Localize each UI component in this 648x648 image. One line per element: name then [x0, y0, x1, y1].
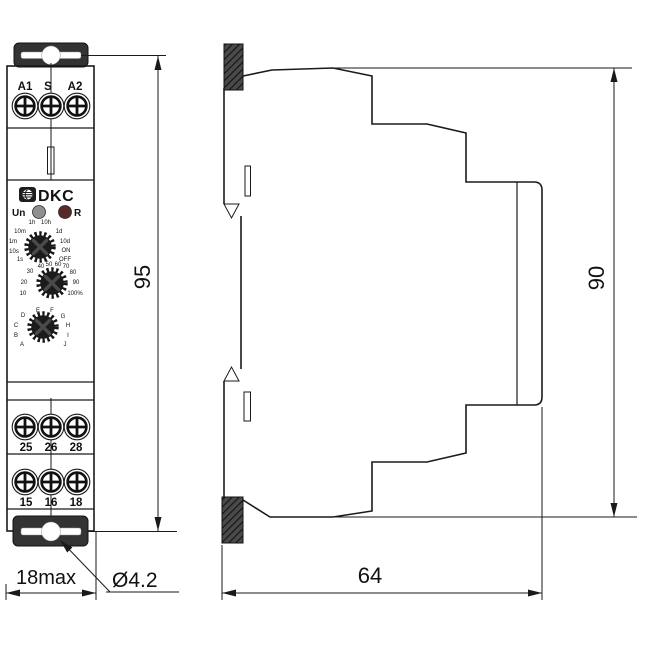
dial3-label: E [36, 308, 40, 314]
arrow-down-icon [155, 517, 162, 531]
dial1-label: 10s [9, 249, 19, 255]
dial2-label: 30 [27, 269, 34, 275]
led-r-label: R [74, 208, 82, 219]
brand-logo: DKC [19, 187, 74, 205]
dial1-label: 1s [17, 257, 23, 263]
arrow-up-icon [155, 56, 162, 70]
screw-terminal-icon [64, 93, 90, 119]
screw-terminal-icon [12, 469, 38, 495]
terminal-label-s: S [44, 81, 52, 93]
screw-terminal-icon [38, 469, 64, 495]
dial3-label: F [50, 308, 54, 314]
screw-terminal-icon [38, 93, 64, 119]
dimension-95-label: 95 [130, 265, 155, 289]
dial1-label: ON [62, 248, 71, 254]
hole-diameter-label: Ø4.2 [112, 569, 158, 592]
side-slot-lower [244, 392, 251, 421]
side-slot-upper [245, 166, 251, 196]
screw-terminals-top [12, 93, 90, 119]
dimension-drawing: A1 S A2 DKC Un [0, 0, 648, 648]
dial3-label: J [64, 342, 67, 348]
terminal-label-a1: A1 [18, 81, 33, 93]
screw-terminal-icon [12, 93, 38, 119]
dimension-95: 95 [81, 56, 177, 532]
dial3-label: G [61, 314, 66, 320]
latch-wedge-lower [224, 367, 239, 381]
arrow-up-icon [611, 68, 618, 82]
terminal-label-16: 16 [45, 497, 58, 509]
led-indicators: Un R [12, 206, 82, 220]
led-un-icon [33, 206, 46, 219]
dial1-label: 1d [56, 229, 63, 235]
side-body-outline [243, 68, 542, 517]
terminal-label-a2: A2 [68, 81, 83, 93]
dial2-label: 50 [46, 262, 53, 268]
screw-terminal-icon [38, 414, 64, 440]
dial3-label: B [14, 333, 18, 339]
hole-callout: Ø4.2 [60, 540, 179, 592]
dial3-label: D [21, 313, 26, 319]
dial3-label: C [14, 323, 19, 329]
arrow-right-icon [528, 590, 542, 597]
latch-wedge-upper [224, 204, 239, 218]
dial-percent: 40 50 60 70 30 20 10 80 90 100% [20, 262, 84, 297]
terminal-label-18: 18 [70, 497, 83, 509]
dial1-label: 10d [60, 239, 70, 245]
screw-terminal-icon [64, 469, 90, 495]
terminal-label-26: 26 [45, 442, 58, 454]
arrow-left-icon [222, 590, 236, 597]
screw-terminal-icon [64, 414, 90, 440]
screw-terminal-icon [12, 414, 38, 440]
terminal-label-25: 25 [20, 442, 33, 454]
dial3-label: I [67, 333, 69, 339]
bottom-din-clip [13, 516, 88, 546]
led-un-label: Un [12, 208, 25, 219]
dial3-label: H [66, 323, 70, 329]
dial1-label: 1h [29, 220, 36, 226]
dimension-18max-label: 18max [16, 567, 76, 589]
arrow-right-icon [82, 590, 96, 597]
arrow-left-icon [6, 590, 20, 597]
rotary-knob-icon [27, 234, 53, 260]
dial2-label: 80 [70, 270, 77, 276]
dial2-label: 60 [55, 262, 62, 268]
bottom-mounting-hole [42, 522, 61, 541]
dial1-label: 1m [9, 239, 17, 245]
rotary-knob-icon [30, 314, 56, 340]
drawing-canvas: A1 S A2 DKC Un [0, 0, 648, 648]
screw-terminals-bottom: 15 16 18 [12, 469, 90, 509]
dial2-label: 20 [21, 280, 28, 286]
arrow-down-icon [611, 503, 618, 517]
led-r-icon [59, 206, 72, 219]
dial1-label: 10h [41, 220, 51, 226]
dimension-64-label: 64 [358, 563, 382, 588]
side-view [222, 44, 542, 543]
dial2-label: 90 [73, 280, 80, 286]
brand-text: DKC [38, 188, 74, 205]
dial2-label: 40 [38, 264, 45, 270]
dial-function: E F D G C H B I A J [14, 308, 70, 348]
dial2-label: 100% [67, 291, 83, 297]
rotary-knob-icon [39, 270, 65, 296]
dial2-label: 10 [20, 291, 27, 297]
top-mounting-hole [42, 46, 61, 65]
screw-terminals-mid: 25 26 28 [12, 414, 90, 454]
front-view: A1 S A2 DKC Un [7, 43, 94, 546]
dimension-64: 64 [222, 407, 542, 600]
dial1-label: 10m [14, 229, 26, 235]
dimension-90: 90 [335, 68, 637, 517]
side-top-clip [224, 44, 243, 90]
terminal-label-28: 28 [70, 442, 83, 454]
dimension-90-label: 90 [584, 266, 609, 290]
terminal-label-15: 15 [20, 497, 33, 509]
dial3-label: A [20, 342, 24, 348]
side-bottom-clip [222, 497, 243, 543]
dial-time-range: 1h 10h 10m 1m 10s 1s 1d 10d ON OFF [9, 220, 72, 263]
